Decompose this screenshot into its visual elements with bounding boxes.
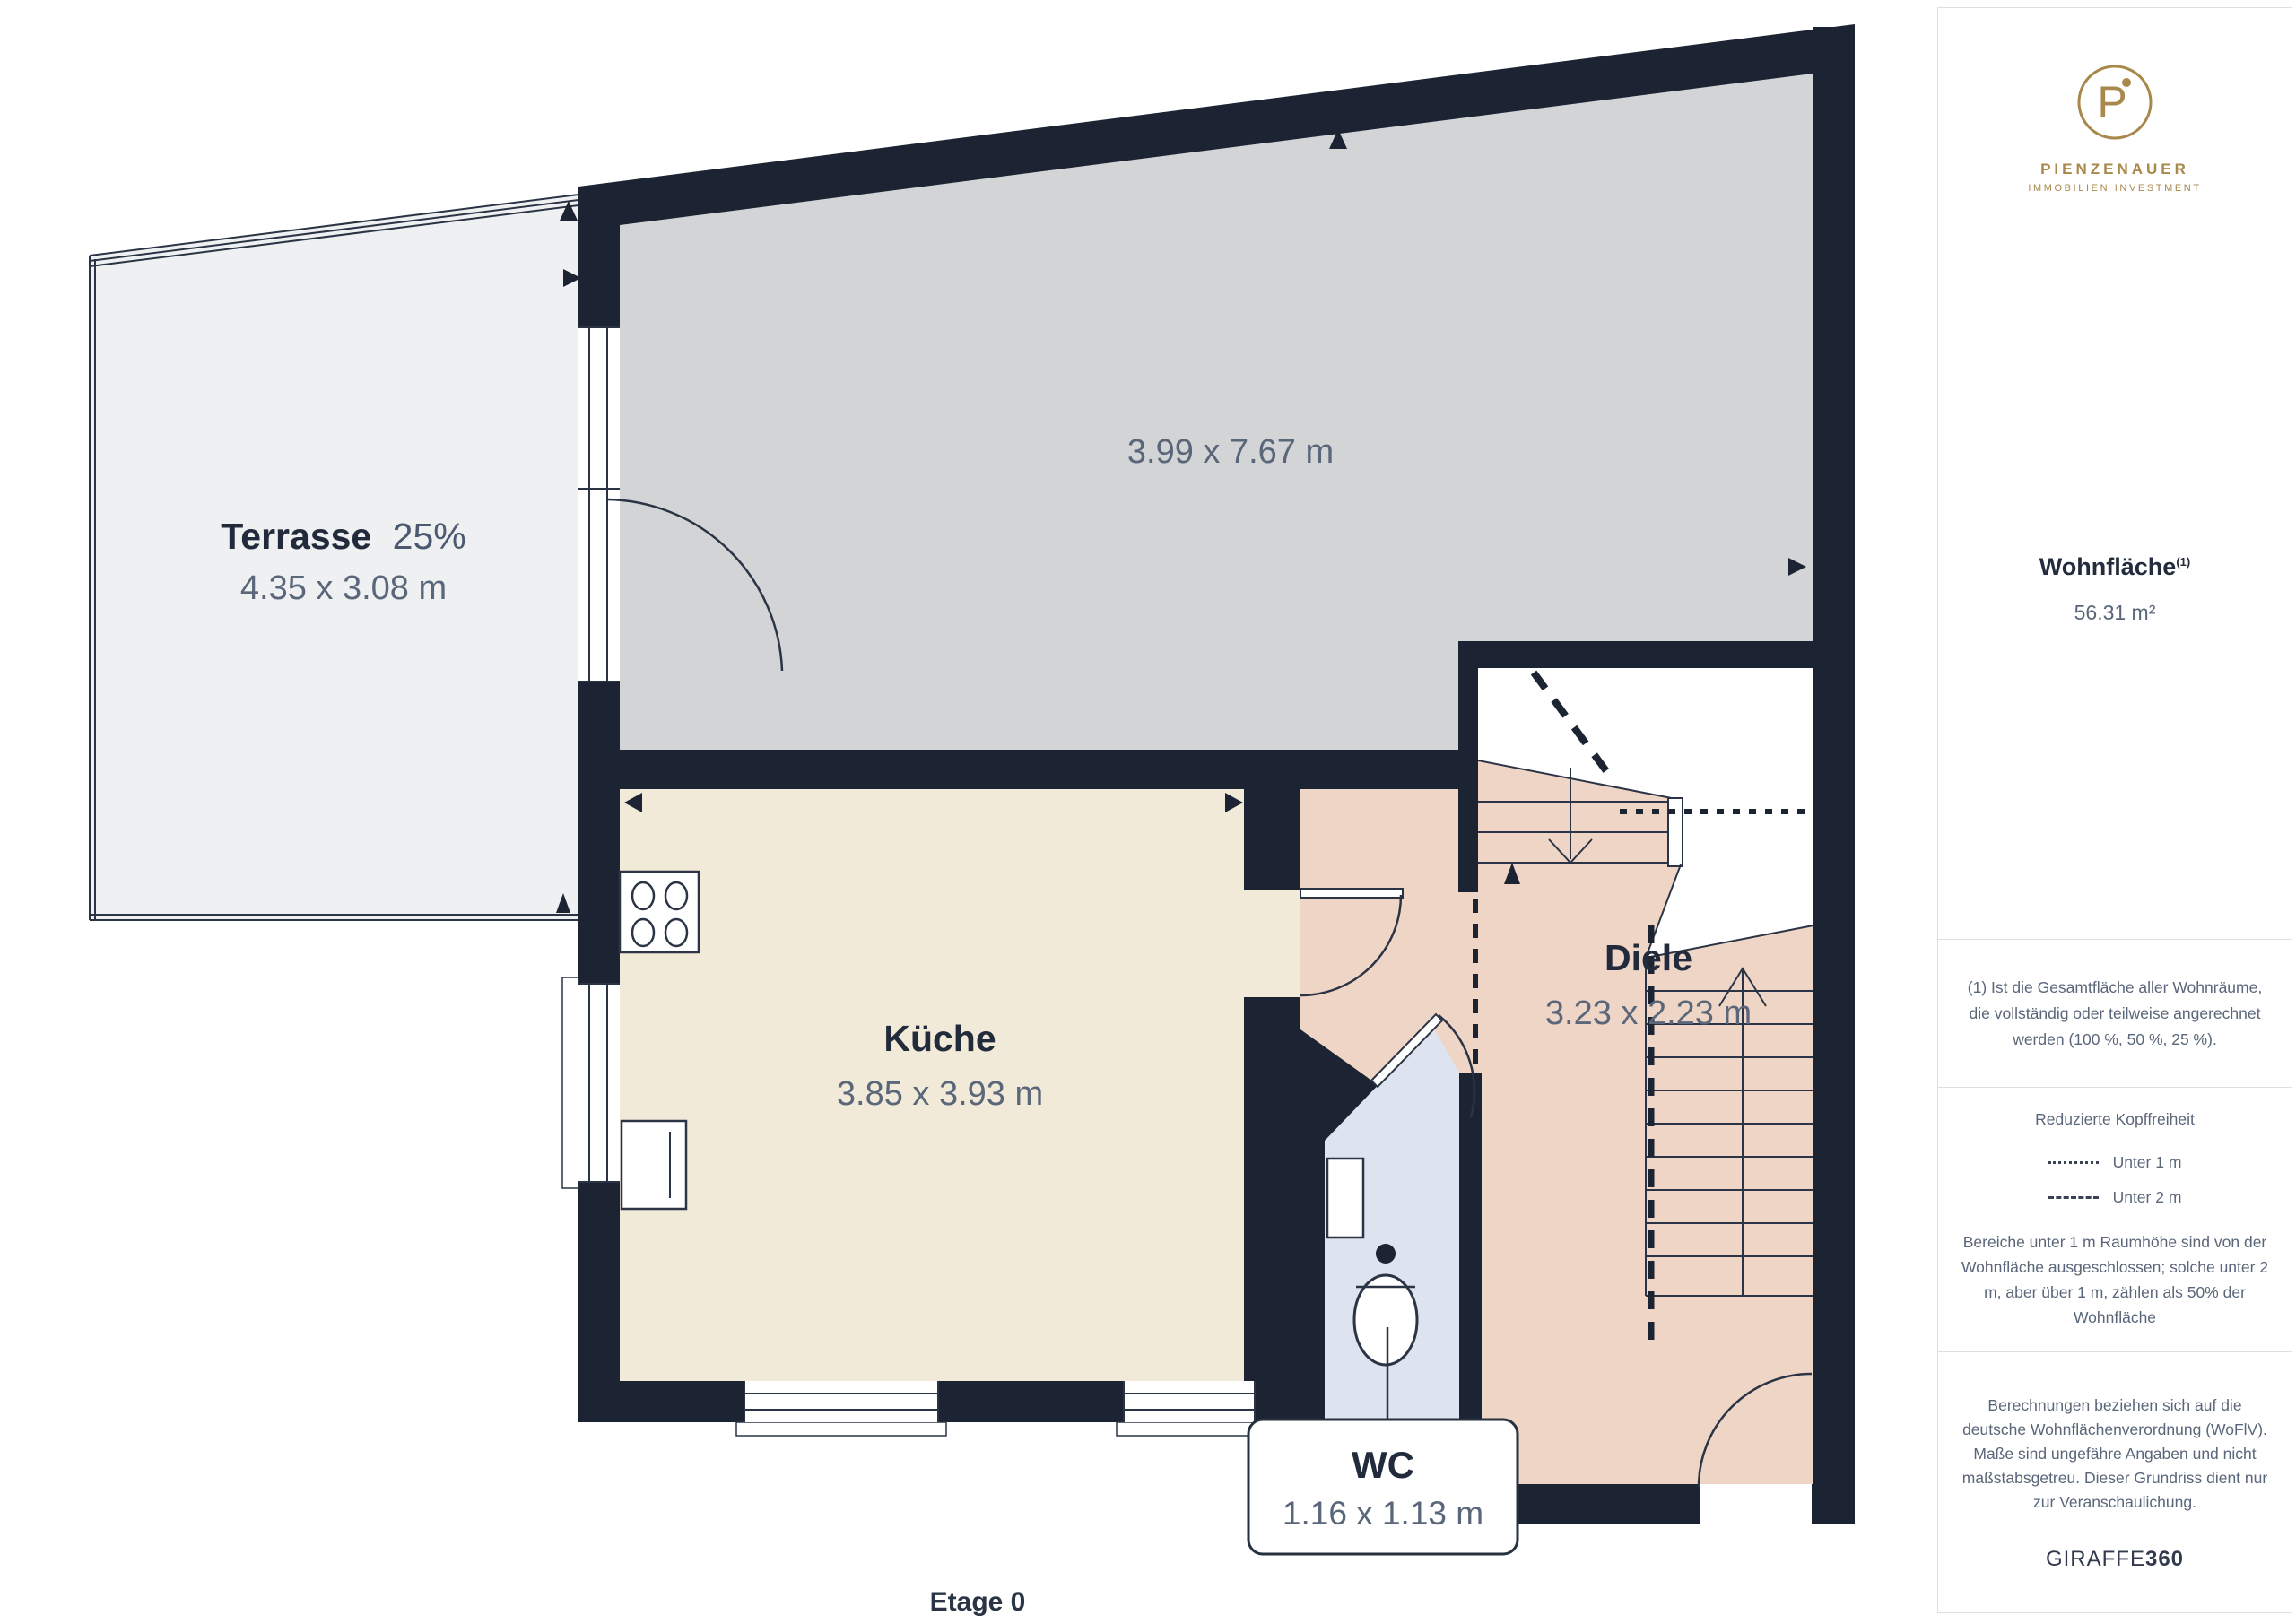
headroom-legend-card: Reduzierte Kopffreiheit Unter 1 m Unter … [1937, 1088, 2292, 1352]
brand-tagline: IMMOBILIEN INVESTMENT [2028, 183, 2201, 194]
area-footnote-card: (1) Ist die Gesamtfläche aller Wohnräume… [1937, 940, 2292, 1088]
disclaimer-text: Berechnungen beziehen sich auf die deuts… [1960, 1394, 2270, 1515]
headroom-note: Bereiche unter 1 m Raumhöhe sind von der… [1960, 1229, 2270, 1330]
legend-under-1m: Unter 1 m [2048, 1153, 2182, 1172]
kitchen-dims-label: 3.85 x 3.93 m [837, 1075, 1043, 1113]
wall-right [1813, 27, 1855, 1524]
toilet-icon [1376, 1244, 1396, 1264]
hall-name-label: Diele [1605, 937, 1692, 978]
logo-monogram-icon: P [2066, 53, 2164, 152]
wall-wc-right [1459, 1073, 1482, 1422]
giraffe360-watermark: GIRAFFE360 [2046, 1547, 2184, 1572]
sink-icon [622, 1121, 686, 1209]
dashed-line-sample-icon [2048, 1196, 2099, 1199]
kitchen-name-label: Küche [883, 1018, 996, 1059]
terrace-name-label: Terrasse 25% [221, 516, 465, 557]
window-sill [562, 977, 578, 1188]
area-footnote: (1) Ist die Gesamtfläche aller Wohnräume… [1963, 975, 2266, 1053]
company-logo: P PIENZENAUER IMMOBILIEN INVESTMENT [1937, 7, 2292, 239]
headroom-title: Reduzierte Kopffreiheit [2035, 1110, 2195, 1129]
wall-living-kitchen [578, 750, 1458, 789]
living-area-card: Wohnfläche(1) 56.31 m² [1937, 239, 2292, 940]
window-sill [736, 1422, 946, 1436]
info-panel: P PIENZENAUER IMMOBILIEN INVESTMENT Wohn… [1937, 7, 2292, 1613]
terrace-dims-label: 4.35 x 3.08 m [240, 569, 447, 607]
wc-name-label: WC [1352, 1444, 1414, 1486]
basin-icon [1327, 1159, 1363, 1238]
dotted-line-sample-icon [2048, 1161, 2099, 1164]
wall-stair-side [1458, 668, 1478, 892]
living-area-title: Wohnfläche(1) [2039, 553, 2190, 581]
legend-under-2m: Unter 2 m [2048, 1188, 2182, 1207]
hall-dims-label: 3.23 x 2.23 m [1545, 994, 1752, 1032]
window-sill [1117, 1422, 1262, 1436]
living-dims-label: 3.99 x 7.67 m [1127, 433, 1334, 471]
stove-icon [620, 872, 699, 952]
living-area-value: 56.31 m² [2074, 601, 2156, 625]
wall-stairwell-top [1458, 641, 1813, 668]
brand-name: PIENZENAUER [2040, 161, 2189, 178]
room-terrace [90, 195, 578, 920]
disclaimer-card: Berechnungen beziehen sich auf die deuts… [1937, 1352, 2292, 1613]
wc-dims-label: 1.16 x 1.13 m [1283, 1495, 1483, 1532]
floor-level-label: Etage 0 [930, 1587, 1026, 1617]
door-leaf [1300, 889, 1403, 898]
wall-kitchen-hall-upper [1244, 750, 1300, 890]
floor-plan: 3.99 x 7.67 m Terrasse 25% 4.35 x 3.08 m… [0, 0, 1937, 1624]
